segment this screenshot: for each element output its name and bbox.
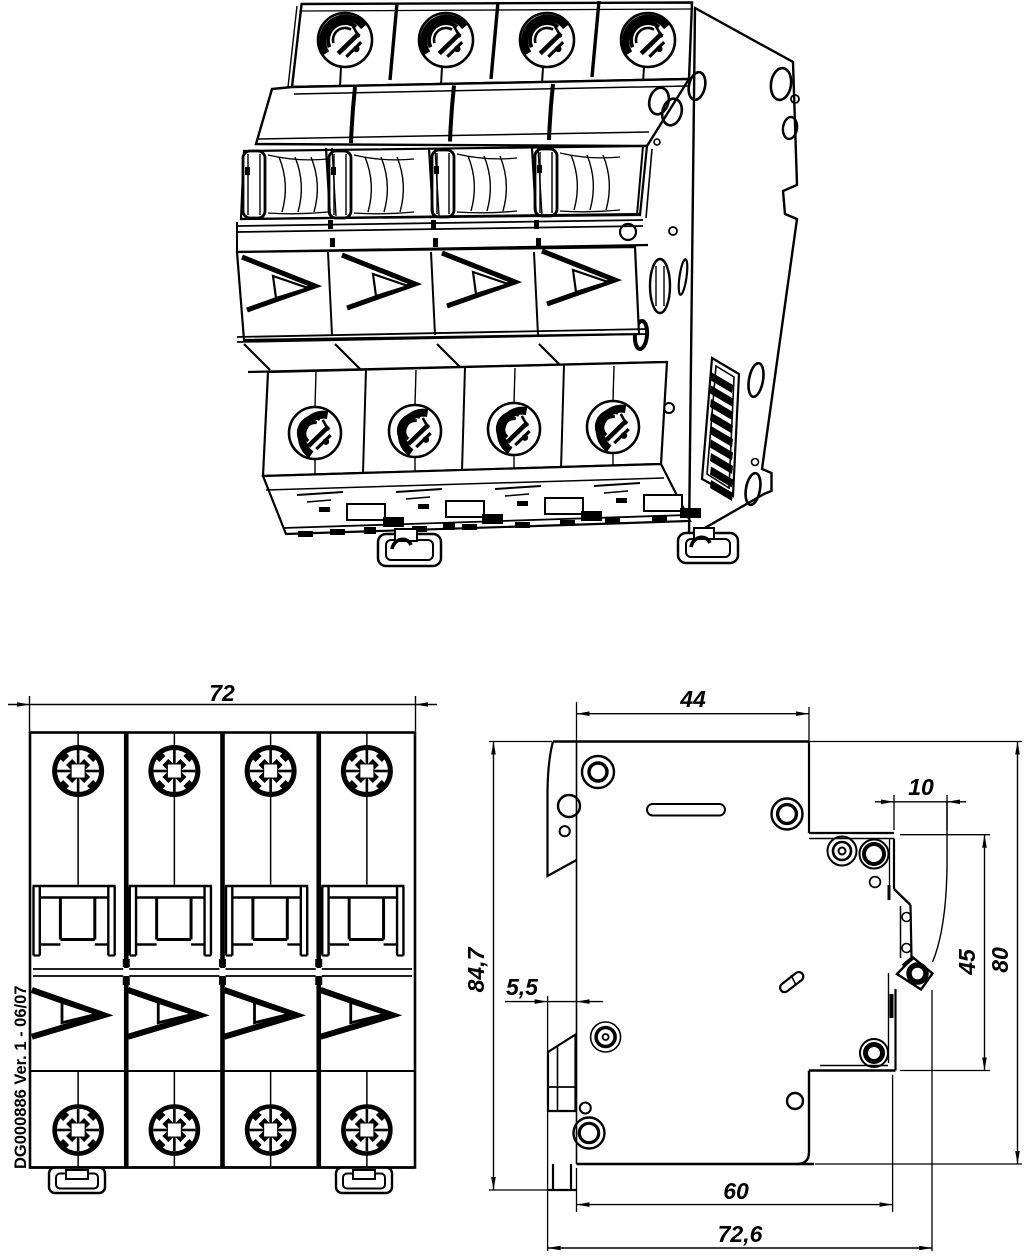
svg-text:44: 44 bbox=[679, 686, 706, 712]
svg-text:10: 10 bbox=[908, 774, 934, 800]
svg-text:80: 80 bbox=[987, 947, 1013, 973]
svg-text:84,7: 84,7 bbox=[463, 946, 489, 992]
svg-text:72,6: 72,6 bbox=[718, 1221, 763, 1247]
svg-text:45: 45 bbox=[954, 948, 980, 976]
svg-text:DG000886 Ver. 1 - 06/07: DG000886 Ver. 1 - 06/07 bbox=[12, 986, 30, 1169]
svg-text:5,5: 5,5 bbox=[506, 974, 539, 1000]
svg-text:60: 60 bbox=[723, 1178, 749, 1204]
svg-text:72: 72 bbox=[209, 680, 235, 706]
